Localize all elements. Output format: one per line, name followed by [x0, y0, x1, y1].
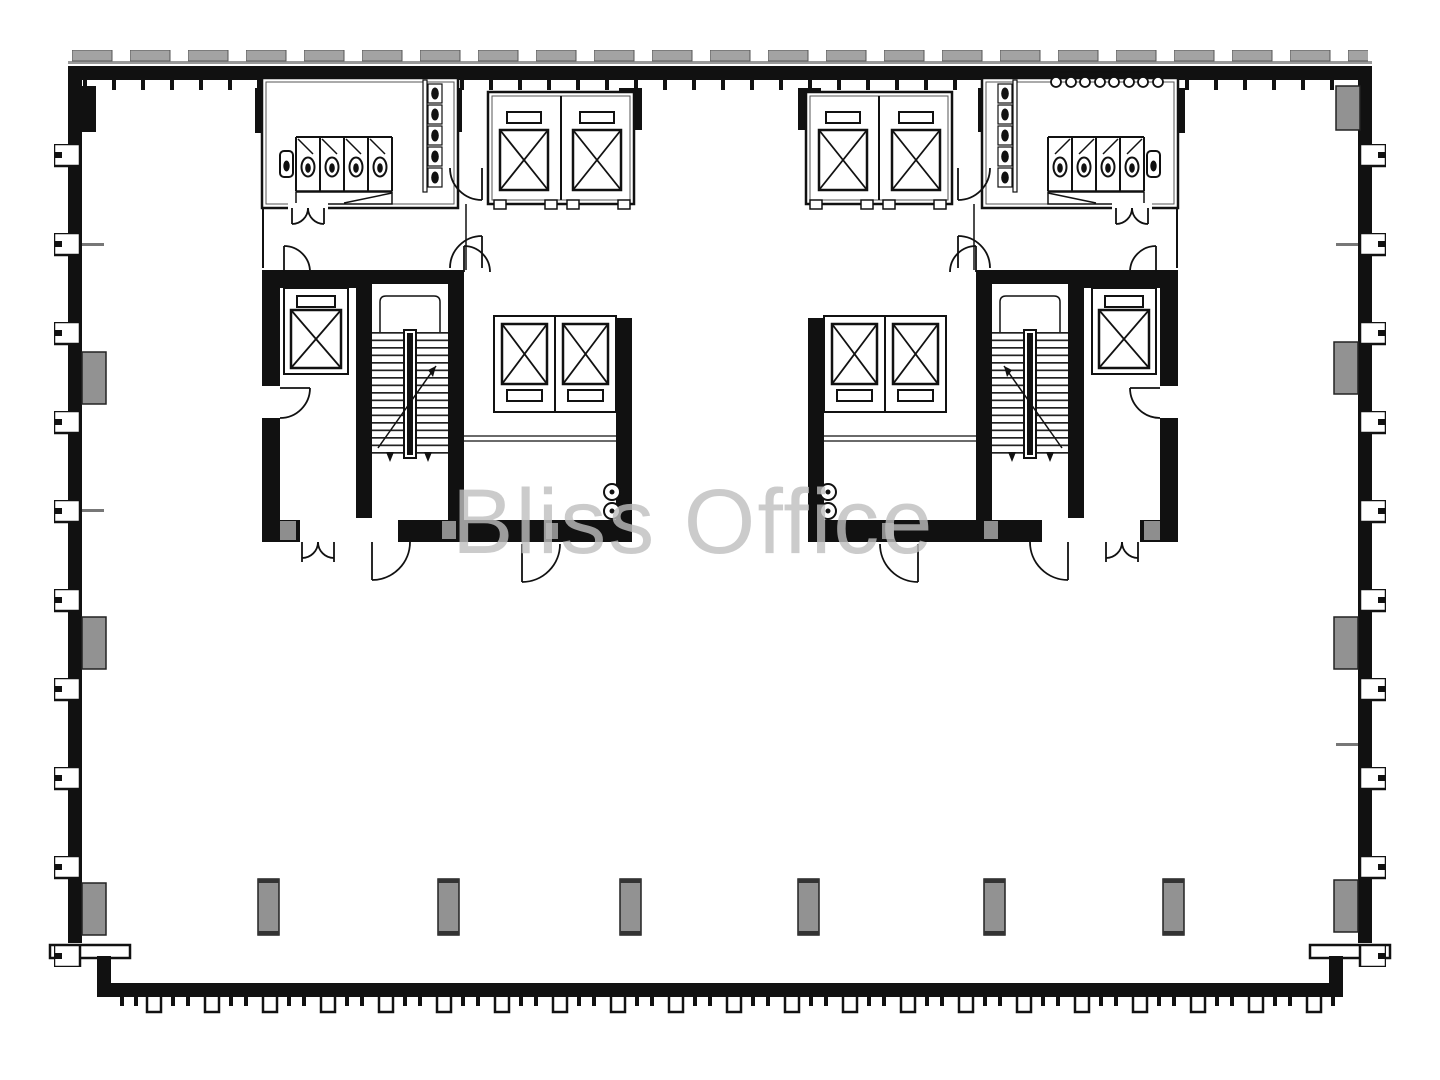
window-caps-top [72, 50, 1368, 62]
floor-plan-canvas: Bliss Office [0, 0, 1440, 1080]
bottom-wall [97, 983, 1343, 997]
window-mullions-bottom [145, 997, 1338, 1019]
column [258, 879, 279, 935]
window-mullions-right [1356, 144, 1386, 967]
column [798, 879, 819, 935]
column [438, 879, 459, 935]
column [984, 879, 1005, 935]
window-mullions-left [54, 144, 84, 967]
column [620, 879, 641, 935]
column [1163, 879, 1184, 935]
floor-columns [258, 879, 1184, 935]
watermark: Bliss Office [452, 471, 934, 573]
